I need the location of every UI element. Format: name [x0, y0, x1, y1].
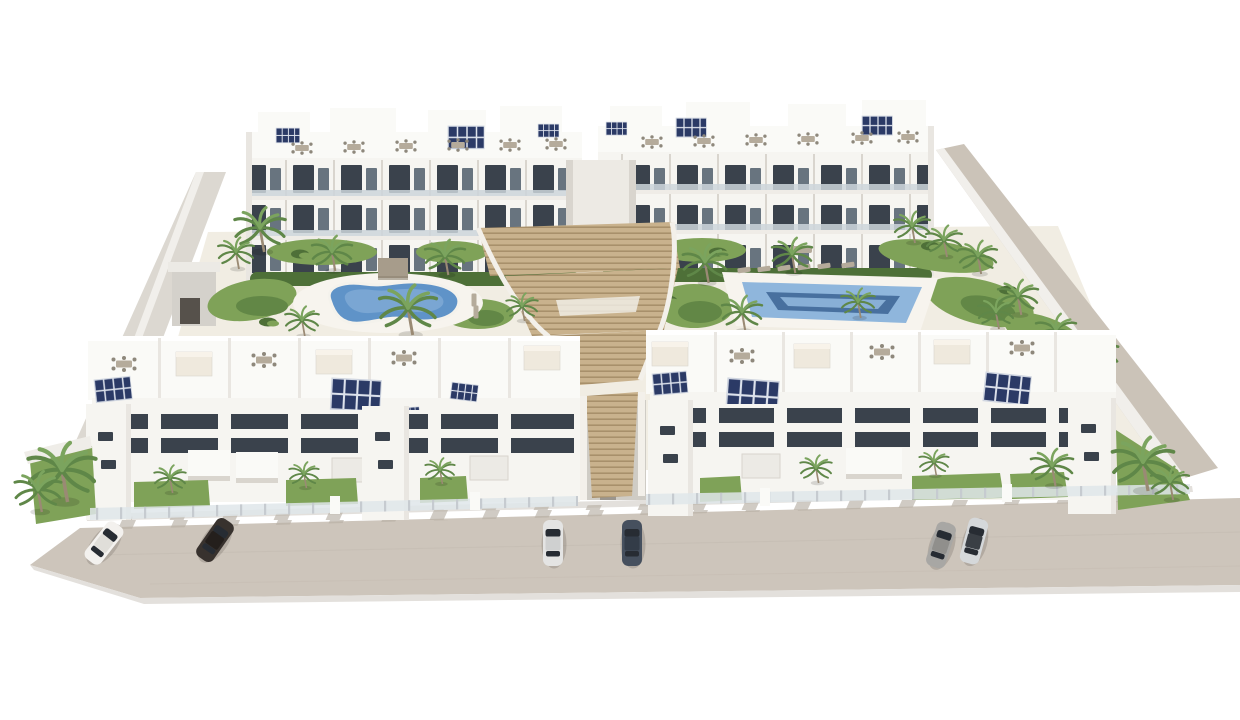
roof-parapet-line: [88, 336, 580, 341]
entry-volume: [846, 448, 902, 478]
balcony-railing: [600, 184, 932, 190]
balcony-railing: [248, 190, 580, 196]
solar-panel-array: [94, 376, 132, 402]
stair-flight-upper: [478, 222, 680, 276]
utility-door: [180, 298, 200, 324]
garden-bed: [678, 301, 722, 323]
front-central-gap: [580, 392, 646, 500]
terrace-canopy: [794, 344, 830, 368]
entry-volume: [236, 452, 278, 482]
car-dark-gray: [621, 520, 646, 569]
render-canvas: [0, 0, 1240, 720]
pool-pergola-shadow: [378, 276, 408, 280]
window-ribbon: [656, 432, 1108, 447]
solar-panel-array: [538, 124, 559, 137]
front-left-building: [86, 336, 580, 520]
gate-pillar: [330, 496, 340, 514]
floor-slab: [600, 190, 932, 194]
sun-lounger: [474, 306, 479, 319]
entry-volume-shade: [188, 476, 230, 481]
solar-panel-array: [862, 116, 892, 135]
terrace-canopy: [652, 342, 688, 366]
pool-pergola: [378, 258, 408, 278]
solar-panel-array: [652, 371, 688, 395]
entry-volume: [188, 450, 230, 480]
front-parapet: [650, 392, 1116, 406]
solar-panel-array: [276, 128, 300, 143]
garage-door: [742, 454, 780, 478]
window-ribbon: [656, 408, 1108, 423]
gate-pillar: [760, 488, 770, 506]
garden-bed: [236, 296, 288, 316]
sun-lounger: [472, 294, 477, 307]
street-tower: [1068, 398, 1116, 514]
roof-bulkhead: [330, 108, 396, 134]
utility-roof: [168, 262, 220, 272]
garage-door: [470, 456, 508, 480]
gap-side-wall: [580, 396, 587, 500]
terrace-canopy: [524, 346, 560, 370]
solar-panel-array: [450, 382, 478, 402]
gap-stairs: [586, 392, 638, 498]
left-corner-garden: [15, 436, 96, 524]
floor-slab: [248, 196, 580, 200]
gap-side-wall: [638, 392, 645, 496]
gate-pillar: [1002, 484, 1012, 502]
terrace-canopy: [176, 352, 212, 376]
terrace-canopy: [316, 350, 352, 374]
solar-panel-array: [676, 118, 706, 137]
car-silver: [542, 520, 567, 569]
solar-panel-array: [606, 122, 627, 135]
architectural-render: [0, 0, 1240, 720]
building-end-shade: [246, 132, 252, 282]
roof-bulkhead: [788, 104, 846, 128]
gate-pillar: [470, 492, 480, 510]
terrace-canopy: [934, 340, 970, 364]
entry-volume-shade: [846, 474, 902, 479]
entry-volume-shade: [236, 478, 278, 483]
solar-panel-array: [983, 372, 1031, 405]
